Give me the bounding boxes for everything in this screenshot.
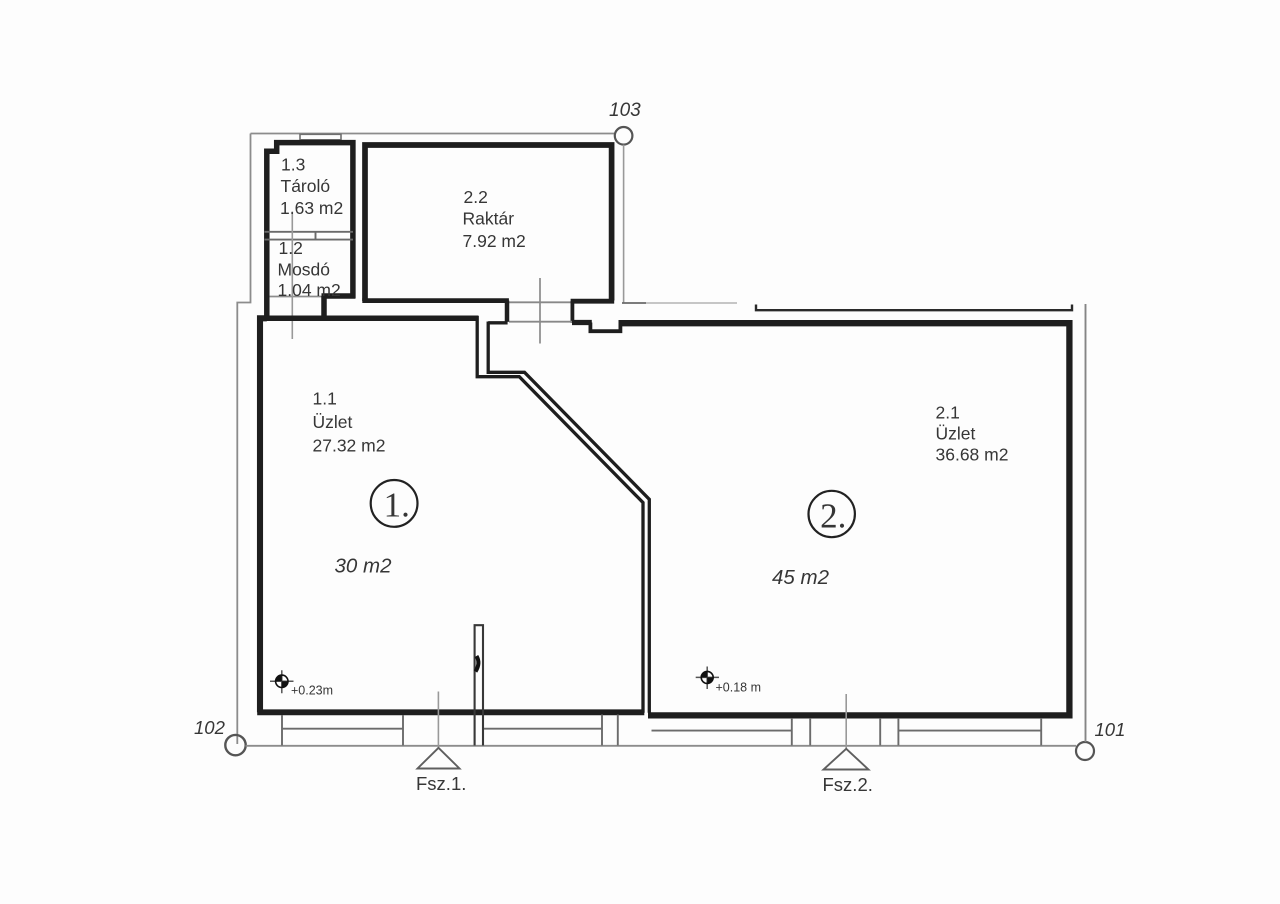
svg-text:1.63 m2: 1.63 m2 — [280, 198, 343, 218]
svg-text:Raktár: Raktár — [463, 209, 515, 229]
svg-text:Üzlet: Üzlet — [936, 424, 976, 444]
svg-text:+0.18 m: +0.18 m — [716, 681, 762, 695]
svg-text:Tároló: Tároló — [281, 176, 331, 196]
svg-text:Fsz.1.: Fsz.1. — [416, 773, 466, 794]
svg-text:103: 103 — [609, 100, 641, 121]
svg-text:+0.23m: +0.23m — [291, 684, 333, 698]
svg-text:Mosdó: Mosdó — [278, 260, 331, 280]
svg-text:1.2: 1.2 — [279, 238, 303, 258]
svg-text:1.3: 1.3 — [281, 155, 305, 175]
svg-text:102: 102 — [194, 717, 226, 738]
svg-text:2.: 2. — [820, 497, 846, 536]
svg-text:2.2: 2.2 — [464, 187, 488, 207]
svg-text:101: 101 — [1095, 719, 1126, 740]
svg-text:27.32 m2: 27.32 m2 — [313, 436, 386, 456]
svg-text:1.1: 1.1 — [313, 389, 337, 409]
svg-text:45 m2: 45 m2 — [772, 566, 830, 589]
svg-text:7.92 m2: 7.92 m2 — [463, 231, 526, 251]
svg-text:Fsz.2.: Fsz.2. — [823, 774, 873, 795]
svg-text:Üzlet: Üzlet — [313, 412, 353, 432]
svg-text:2.1: 2.1 — [936, 403, 960, 423]
svg-text:30 m2: 30 m2 — [335, 555, 393, 578]
svg-text:36.68 m2: 36.68 m2 — [936, 445, 1009, 465]
svg-text:1.: 1. — [384, 486, 410, 525]
svg-text:1.04 m2: 1.04 m2 — [278, 280, 341, 300]
